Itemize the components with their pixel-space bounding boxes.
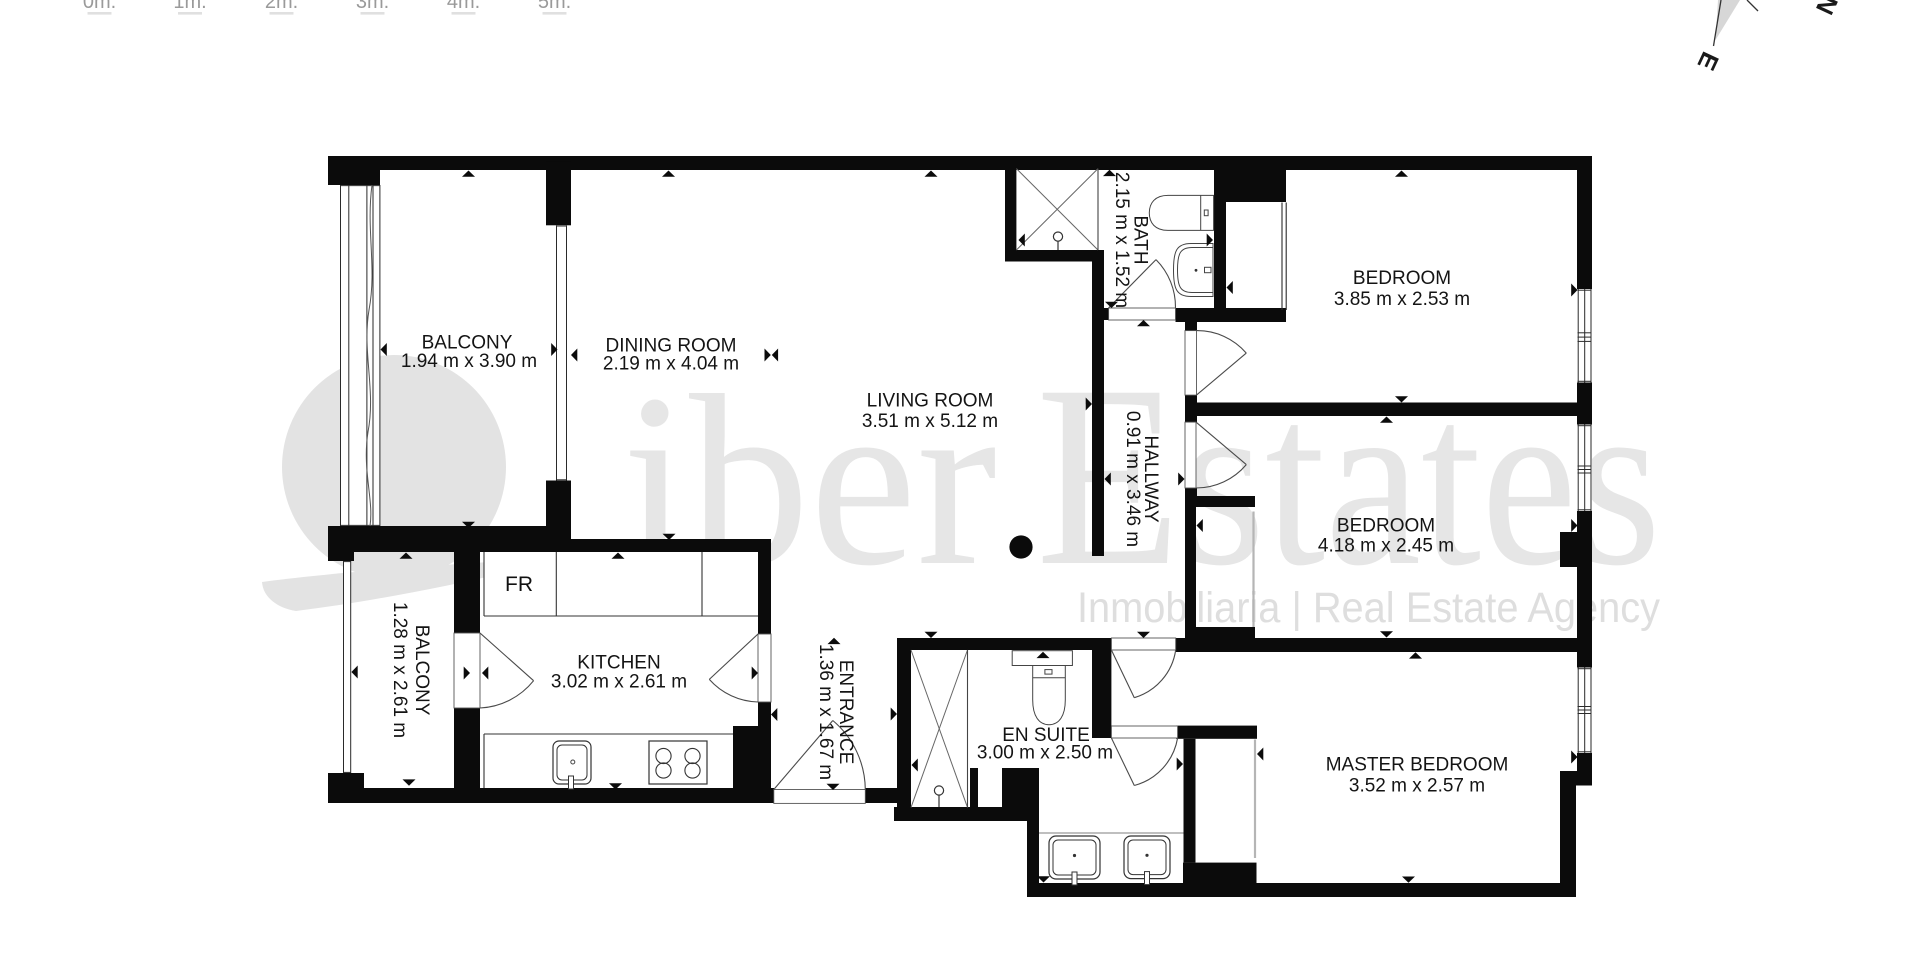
svg-text:MASTER BEDROOM: MASTER BEDROOM <box>1326 755 1509 776</box>
svg-text:1.36 m x 1.67 m: 1.36 m x 1.67 m <box>815 644 836 780</box>
svg-text:BEDROOM: BEDROOM <box>1337 516 1435 537</box>
svg-text:0m.: 0m. <box>83 0 116 13</box>
svg-text:ENTRANCE: ENTRANCE <box>835 660 856 765</box>
svg-text:FR: FR <box>505 573 533 596</box>
svg-text:BEDROOM: BEDROOM <box>1353 268 1451 289</box>
svg-text:3.51 m x 5.12 m: 3.51 m x 5.12 m <box>862 411 998 432</box>
svg-text:4m.: 4m. <box>447 0 480 13</box>
svg-text:2.15 m x 1.52 m: 2.15 m x 1.52 m <box>1111 172 1132 308</box>
svg-text:2.19 m x 4.04 m: 2.19 m x 4.04 m <box>603 353 739 374</box>
svg-text:3m.: 3m. <box>356 0 389 13</box>
svg-text:KITCHEN: KITCHEN <box>577 653 660 674</box>
svg-text:3.02 m x 2.61 m: 3.02 m x 2.61 m <box>551 672 687 693</box>
svg-text:1.94 m x 3.90 m: 1.94 m x 3.90 m <box>401 351 537 372</box>
svg-text:3.00 m x 2.50 m: 3.00 m x 2.50 m <box>977 743 1113 764</box>
svg-text:Inmobiliaria | Real Estate Age: Inmobiliaria | Real Estate Agency <box>1077 584 1660 632</box>
svg-text:3.85 m x 2.53 m: 3.85 m x 2.53 m <box>1334 289 1470 310</box>
svg-text:BALCONY: BALCONY <box>411 625 432 716</box>
svg-text:1m.: 1m. <box>173 0 206 13</box>
svg-text:5m.: 5m. <box>538 0 571 13</box>
svg-text:2m.: 2m. <box>265 0 298 13</box>
svg-text:4.18 m x 2.45 m: 4.18 m x 2.45 m <box>1318 536 1454 557</box>
svg-text:1.28 m x 2.61 m: 1.28 m x 2.61 m <box>389 602 410 738</box>
svg-text:LIVING ROOM: LIVING ROOM <box>867 391 994 412</box>
svg-text:3.52 m x 2.57 m: 3.52 m x 2.57 m <box>1349 776 1485 797</box>
svg-text:0.91 m x 3.46 m: 0.91 m x 3.46 m <box>1122 411 1143 547</box>
